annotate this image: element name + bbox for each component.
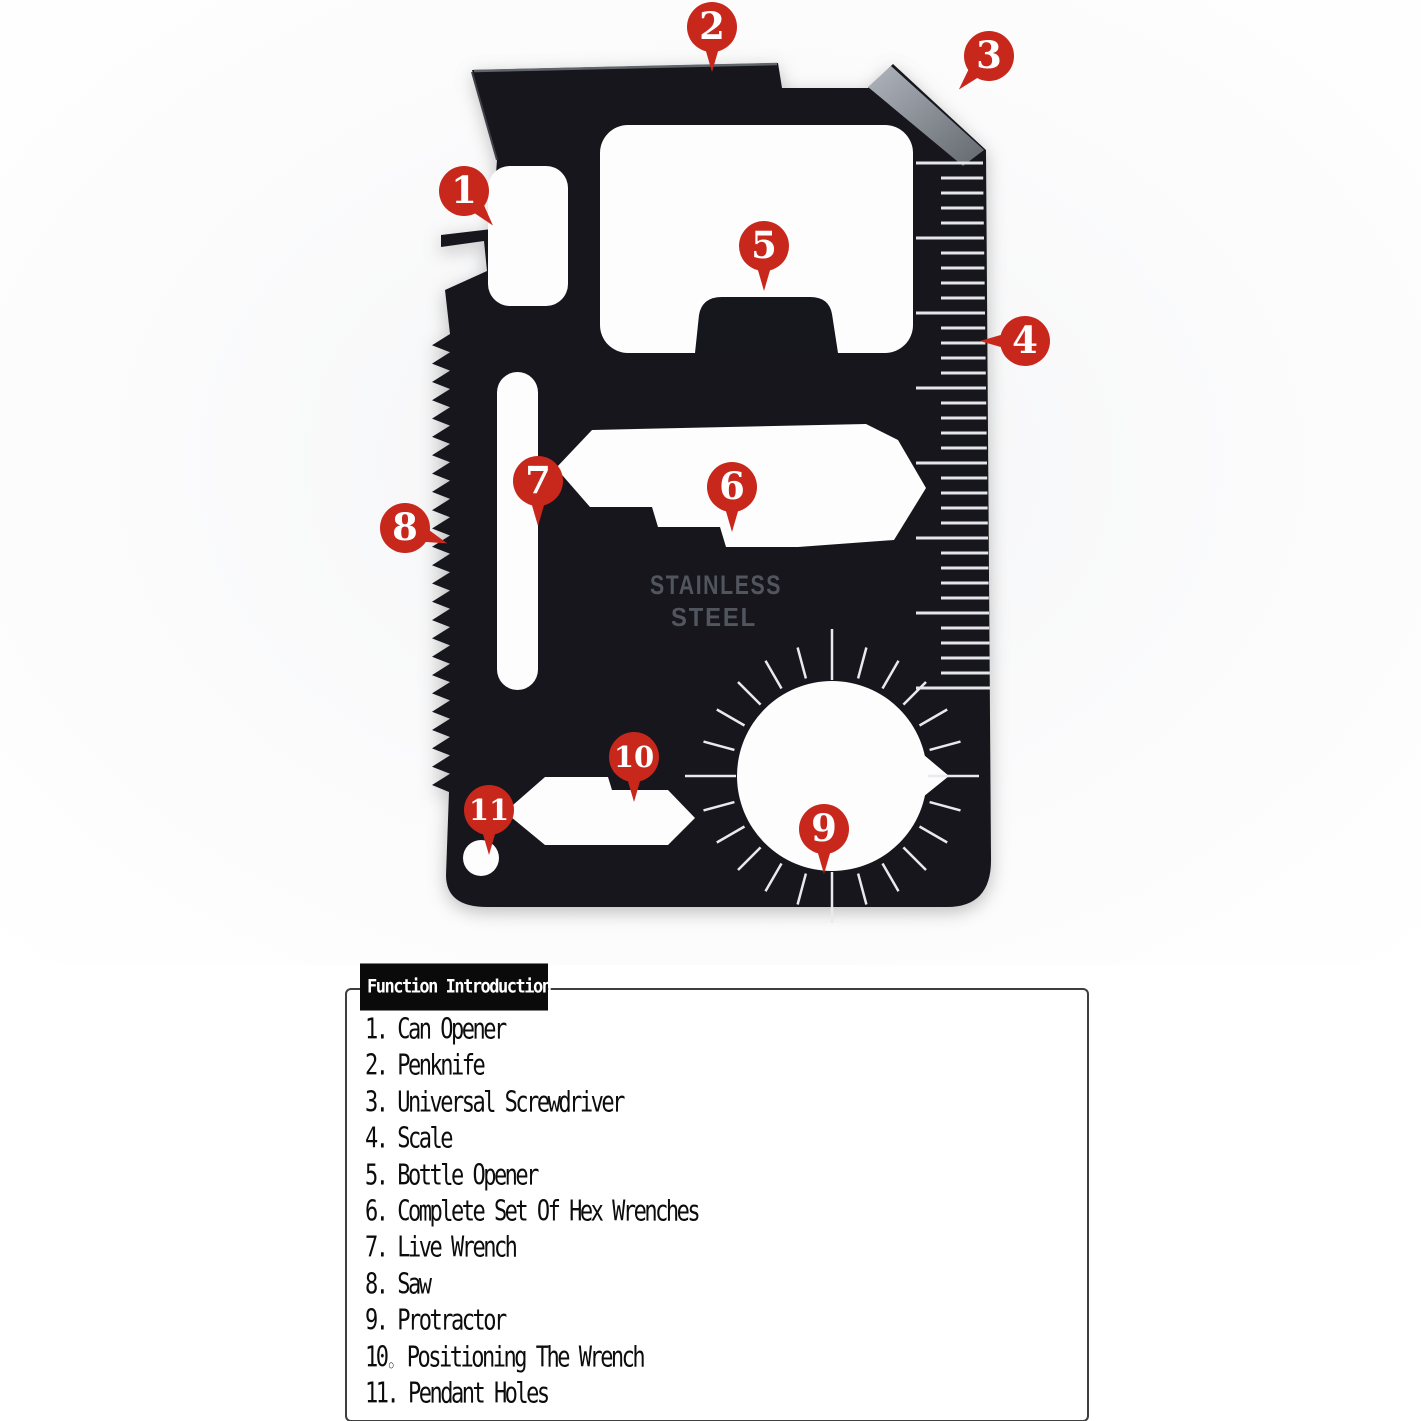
live-wrench-slot (497, 372, 538, 690)
bottle-opener-tab (695, 297, 838, 353)
callout-badge-4: 4 (980, 316, 1050, 366)
svg-text:7: 7 (525, 458, 551, 502)
pendant-hole (463, 840, 499, 876)
svg-text:2: 2 (699, 4, 725, 48)
svg-text:6: 6 (719, 464, 745, 508)
svg-text:3: 3 (976, 33, 1002, 77)
can-opener-cutout (488, 166, 568, 306)
function-item-11: 11. Pendant Holes (365, 1371, 1075, 1418)
svg-text:5: 5 (751, 223, 777, 267)
svg-text:9: 9 (811, 806, 837, 850)
svg-text:8: 8 (392, 505, 418, 549)
function-panel-title: Function Introduction (360, 963, 548, 1010)
svg-text:4: 4 (1012, 318, 1038, 362)
engraving-stainless: STAINLESS (650, 570, 782, 600)
svg-text:1: 1 (451, 168, 477, 212)
callout-badge-3: 3 (952, 31, 1014, 95)
function-list: 1. Can Opener2. Penknife3. Universal Scr… (365, 1013, 1075, 1413)
svg-text:11: 11 (469, 793, 509, 827)
callout-badge-2: 2 (687, 2, 737, 72)
engraving-steel: STEEL (671, 602, 757, 632)
product-image: STAINLESS STEEL 1234567891011 Function I… (0, 0, 1421, 1421)
svg-text:10: 10 (614, 740, 654, 774)
